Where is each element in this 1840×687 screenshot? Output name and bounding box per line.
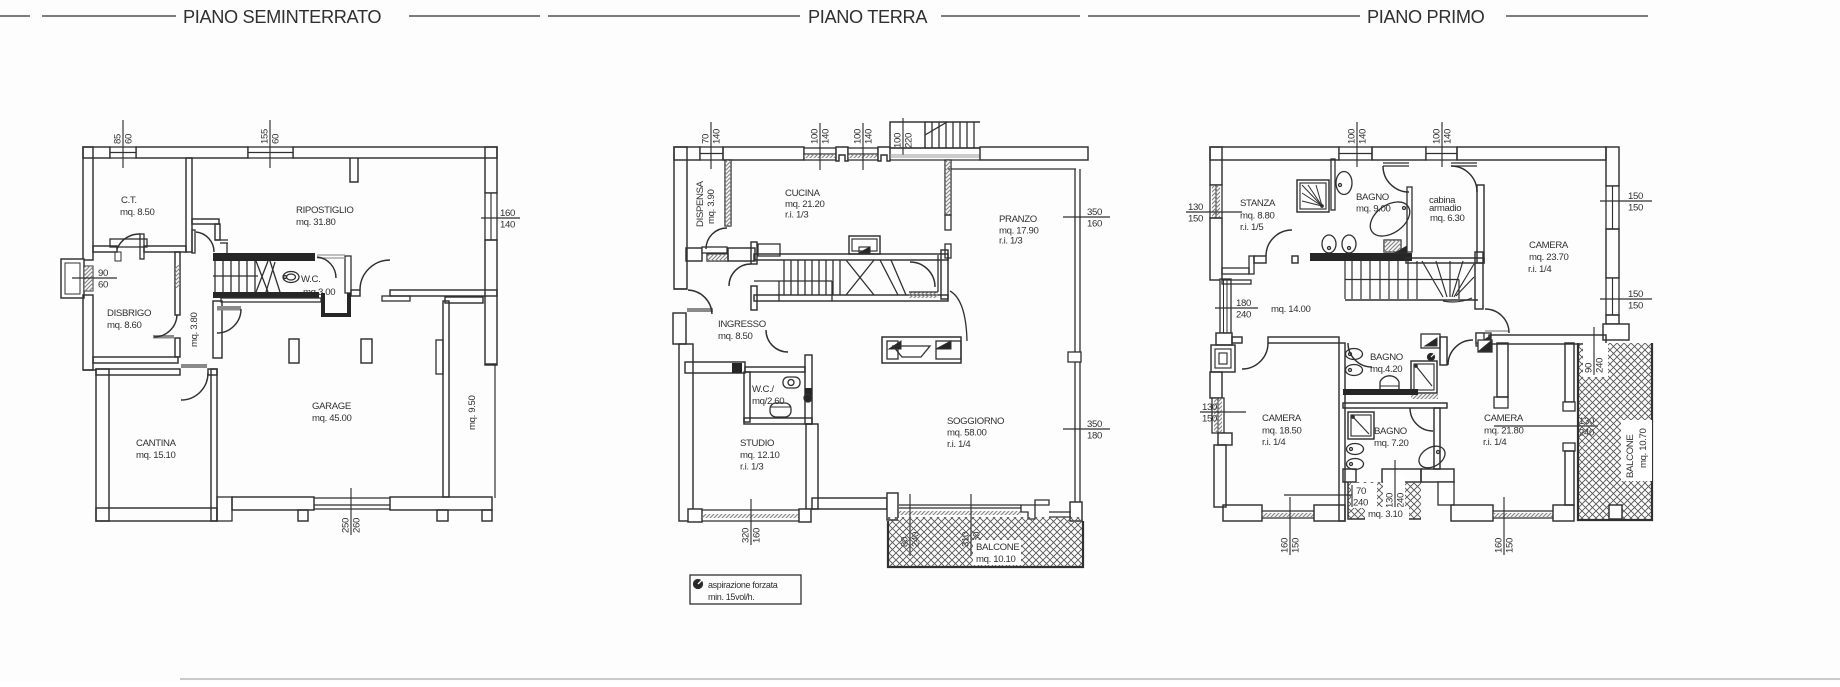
svg-text:mq. 10.70: mq. 10.70 <box>1638 428 1649 468</box>
svg-text:150: 150 <box>1628 203 1643 214</box>
svg-text:240: 240 <box>1396 493 1407 508</box>
svg-text:250: 250 <box>341 518 352 533</box>
svg-text:100: 100 <box>853 129 864 144</box>
svg-text:240: 240 <box>1236 310 1251 321</box>
svg-text:mq/2.60: mq/2.60 <box>752 396 784 407</box>
svg-text:mq. 31.80: mq. 31.80 <box>296 217 336 228</box>
svg-text:W.C.: W.C. <box>301 274 320 285</box>
svg-text:mq. 3.90: mq. 3.90 <box>706 189 717 224</box>
svg-text:90: 90 <box>1584 363 1595 373</box>
svg-text:130: 130 <box>1188 202 1203 213</box>
svg-text:mq. 21.20: mq. 21.20 <box>785 199 825 210</box>
svg-text:BAGNO: BAGNO <box>1356 192 1389 203</box>
svg-text:PRANZO: PRANZO <box>999 214 1037 225</box>
svg-text:RIPOSTIGLIO: RIPOSTIGLIO <box>296 205 353 216</box>
svg-text:60: 60 <box>98 280 108 291</box>
svg-text:130: 130 <box>1385 493 1396 508</box>
svg-text:150: 150 <box>1291 538 1302 553</box>
svg-text:150: 150 <box>1628 191 1643 202</box>
svg-text:CUCINA: CUCINA <box>785 188 821 199</box>
svg-text:DISBRIGO: DISBRIGO <box>107 308 151 319</box>
svg-text:CAMERA: CAMERA <box>1262 413 1302 424</box>
svg-text:STUDIO: STUDIO <box>740 438 774 449</box>
svg-text:PIANO PRIMO: PIANO PRIMO <box>1367 7 1485 27</box>
svg-text:mq. 9.50: mq. 9.50 <box>467 395 478 430</box>
svg-text:140: 140 <box>712 129 723 144</box>
svg-text:160: 160 <box>500 208 515 219</box>
svg-text:GARAGE: GARAGE <box>312 401 351 412</box>
svg-text:100: 100 <box>810 129 821 144</box>
svg-text:SOGGIORNO: SOGGIORNO <box>947 416 1004 427</box>
svg-text:mq. 8.50: mq. 8.50 <box>718 331 753 342</box>
svg-text:INGRESSO: INGRESSO <box>718 319 766 330</box>
svg-text:60: 60 <box>271 134 282 144</box>
svg-text:mq. 15.10: mq. 15.10 <box>136 450 176 461</box>
svg-text:140: 140 <box>821 129 832 144</box>
svg-text:CANTINA: CANTINA <box>136 438 177 449</box>
svg-text:100: 100 <box>1347 129 1358 144</box>
svg-text:min. 15vol/h.: min. 15vol/h. <box>708 592 754 602</box>
svg-text:90: 90 <box>98 268 108 279</box>
svg-text:320: 320 <box>741 528 752 543</box>
svg-text:mq. 6.30: mq. 6.30 <box>1430 213 1465 224</box>
svg-text:BALCONE: BALCONE <box>1625 435 1636 478</box>
svg-text:mq. 3.80: mq. 3.80 <box>189 312 200 347</box>
svg-text:70: 70 <box>1356 486 1366 497</box>
svg-text:130: 130 <box>1202 402 1217 413</box>
svg-text:aspirazione forzata: aspirazione forzata <box>708 580 778 590</box>
svg-text:180: 180 <box>1087 431 1102 442</box>
svg-text:mq. 8.50: mq. 8.50 <box>120 207 155 218</box>
svg-text:140: 140 <box>864 129 875 144</box>
svg-text:mq.4.20: mq.4.20 <box>1370 364 1402 375</box>
svg-text:mq. 14.00: mq. 14.00 <box>1271 304 1311 315</box>
svg-text:350: 350 <box>1087 419 1102 430</box>
svg-text:240: 240 <box>1595 358 1606 373</box>
svg-text:mq. 3.10: mq. 3.10 <box>1368 509 1403 520</box>
svg-text:240: 240 <box>1353 498 1368 509</box>
svg-text:150: 150 <box>1505 538 1516 553</box>
svg-text:260: 260 <box>352 518 363 533</box>
svg-text:100: 100 <box>1432 129 1443 144</box>
svg-text:mq. 21.80: mq. 21.80 <box>1484 426 1524 437</box>
svg-text:BAGNO: BAGNO <box>1374 426 1407 437</box>
svg-text:r.i. 1/3: r.i. 1/3 <box>740 462 763 473</box>
svg-text:140: 140 <box>500 220 515 231</box>
svg-text:mq. 8.60: mq. 8.60 <box>107 320 142 331</box>
svg-text:mq. 7.20: mq. 7.20 <box>1374 438 1409 449</box>
svg-text:150: 150 <box>1628 289 1643 300</box>
svg-text:r.i. 1/3: r.i. 1/3 <box>785 210 808 221</box>
svg-text:85: 85 <box>113 134 124 144</box>
svg-text:r.i. 1/3: r.i. 1/3 <box>999 236 1022 247</box>
svg-text:DISPENSA: DISPENSA <box>695 180 706 227</box>
svg-text:140: 140 <box>1358 129 1369 144</box>
svg-text:160: 160 <box>752 528 763 543</box>
svg-text:PIANO TERRA: PIANO TERRA <box>808 7 928 27</box>
svg-text:150: 150 <box>1628 301 1643 312</box>
svg-text:100: 100 <box>893 133 904 148</box>
svg-text:r.i. 1/4: r.i. 1/4 <box>1262 437 1286 448</box>
svg-text:160: 160 <box>1087 219 1102 230</box>
svg-text:r.i. 1/4: r.i. 1/4 <box>1483 437 1507 448</box>
svg-text:60: 60 <box>124 134 135 144</box>
svg-text:160: 160 <box>1494 538 1505 553</box>
svg-text:350: 350 <box>1087 207 1102 218</box>
svg-text:C.T.: C.T. <box>121 195 137 206</box>
svg-text:BALCONE: BALCONE <box>976 542 1019 553</box>
svg-text:CAMERA: CAMERA <box>1529 240 1569 251</box>
svg-text:W.C./: W.C./ <box>752 384 774 395</box>
svg-text:mq. 8.80: mq. 8.80 <box>1240 211 1275 222</box>
svg-text:CAMERA: CAMERA <box>1484 413 1524 424</box>
svg-text:r.i. 1/4: r.i. 1/4 <box>1528 264 1552 275</box>
svg-text:mq. 10.10: mq. 10.10 <box>976 554 1016 565</box>
svg-text:PIANO SEMINTERRATO: PIANO SEMINTERRATO <box>183 7 381 27</box>
svg-text:r.i. 1/5: r.i. 1/5 <box>1240 222 1263 233</box>
svg-text:BAGNO: BAGNO <box>1370 352 1403 363</box>
svg-text:mq. 58.00: mq. 58.00 <box>947 428 987 439</box>
svg-text:70: 70 <box>701 134 712 144</box>
svg-text:220: 220 <box>904 133 915 148</box>
svg-text:140: 140 <box>1443 129 1454 144</box>
svg-text:mq. 18.50: mq. 18.50 <box>1262 426 1302 437</box>
svg-text:mq. 23.70: mq. 23.70 <box>1529 252 1569 263</box>
svg-text:r.i. 1/4: r.i. 1/4 <box>947 439 971 450</box>
svg-text:STANZA: STANZA <box>1240 198 1276 209</box>
svg-text:mq. 45.00: mq. 45.00 <box>312 413 352 424</box>
svg-text:180: 180 <box>1236 298 1251 309</box>
svg-text:150: 150 <box>1202 414 1217 425</box>
svg-text:mq. 12.10: mq. 12.10 <box>740 450 780 461</box>
svg-text:150: 150 <box>1188 214 1203 225</box>
svg-text:155: 155 <box>260 129 271 144</box>
svg-text:160: 160 <box>1280 538 1291 553</box>
